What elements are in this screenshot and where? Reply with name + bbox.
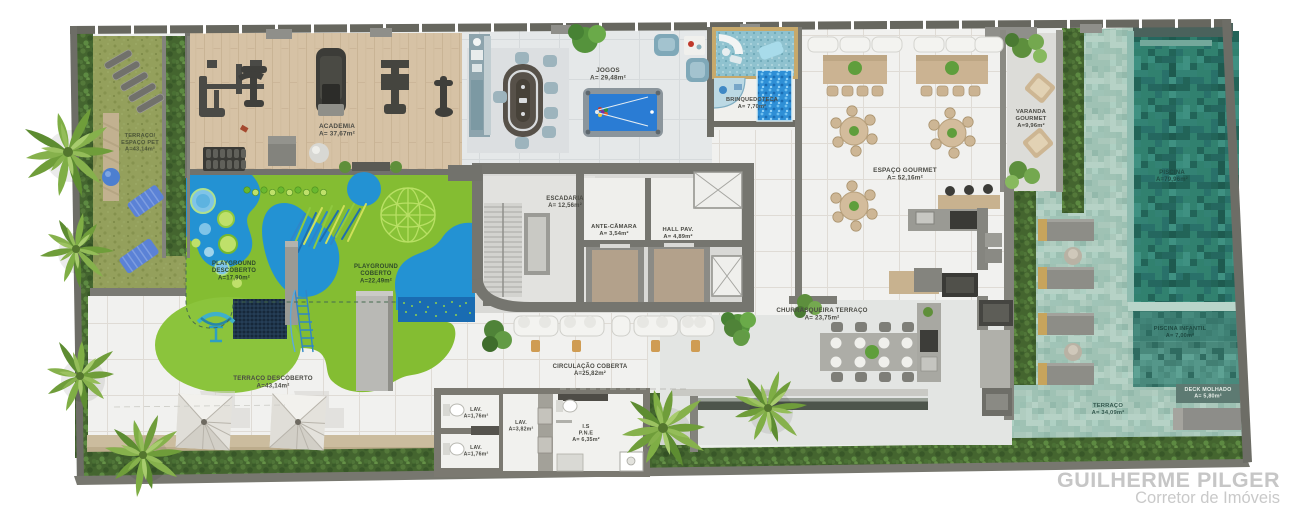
svg-text:VARANDAGOURMETA=9,96m²: VARANDAGOURMETA=9,96m² (1015, 109, 1046, 129)
svg-text:HALL PAV.A= 4,89m²: HALL PAV.A= 4,89m² (663, 227, 694, 240)
svg-text:ACADEMIAA= 37,67m²: ACADEMIAA= 37,67m² (319, 123, 355, 138)
svg-text:TERRAÇOA= 34,09m²: TERRAÇOA= 34,09m² (1092, 403, 1125, 416)
svg-text:ESCADARIAA= 12,56m²: ESCADARIAA= 12,56m² (546, 196, 584, 209)
svg-text:Corretor de Imóveis: Corretor de Imóveis (1135, 489, 1280, 507)
svg-text:PLAYGROUNDDESCOBERTOA=17,90m²: PLAYGROUNDDESCOBERTOA=17,90m² (212, 261, 257, 281)
svg-text:TERRAÇO/ESPAÇO PETA=43,14m²: TERRAÇO/ESPAÇO PETA=43,14m² (121, 133, 159, 153)
svg-text:PISCINAA=79,96m²: PISCINAA=79,96m² (1156, 170, 1188, 183)
